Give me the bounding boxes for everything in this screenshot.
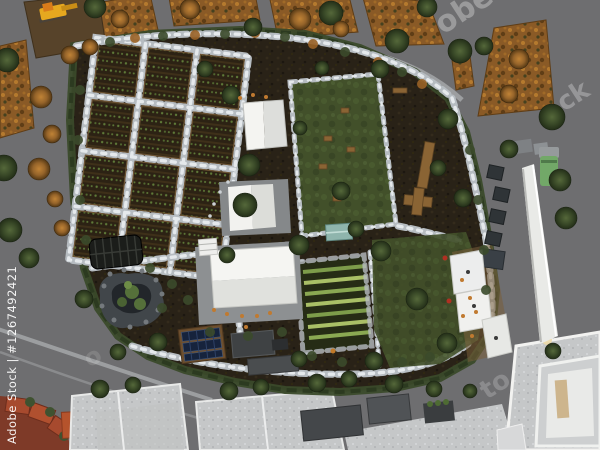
central-lawn [290, 74, 396, 236]
watermark-side-label: Adobe Stock | #1267492421 [5, 266, 19, 444]
stock-photo-stage: Adobe Stock | #1267492421 obe ck to o [0, 0, 600, 450]
aerial-garden-render: Adobe Stock | #1267492421 obe ck to o [0, 0, 600, 450]
vegetable-patch [297, 255, 372, 353]
solar-panel-array [178, 324, 226, 363]
tunnel-greenhouse [89, 234, 144, 269]
mini-gazebo [198, 238, 217, 256]
event-tent-small [243, 100, 287, 150]
